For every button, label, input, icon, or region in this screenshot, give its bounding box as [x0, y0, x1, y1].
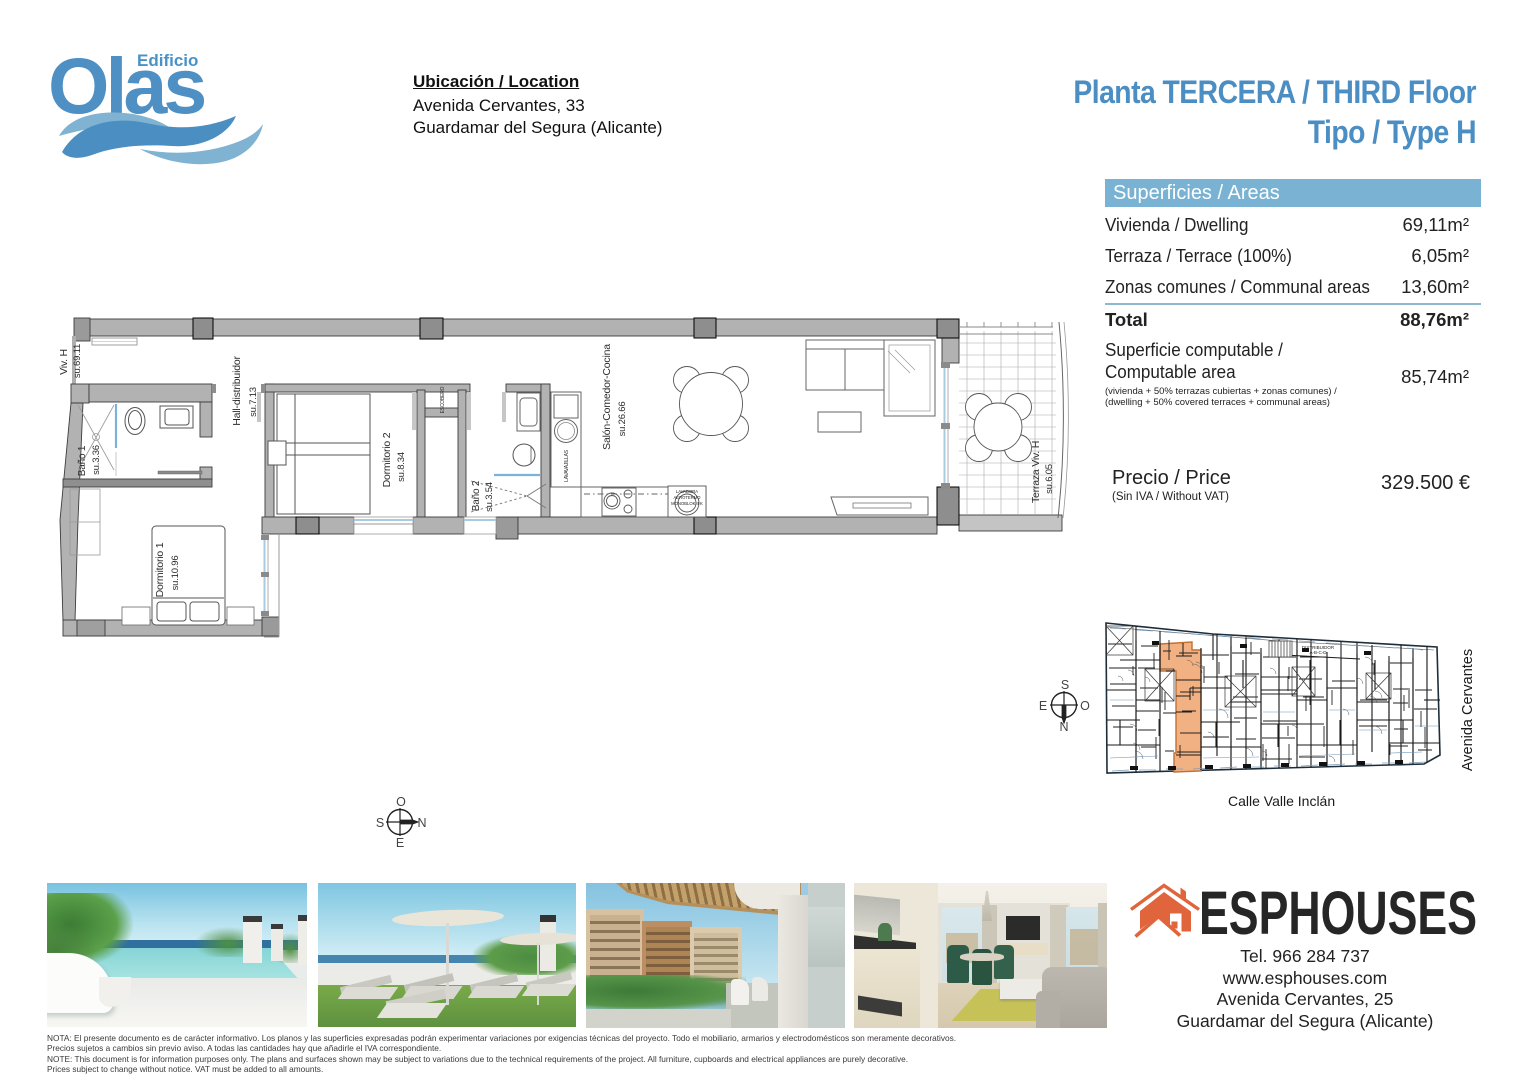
svg-text:Salón-Comedor-Cocina: Salón-Comedor-Cocina — [601, 344, 613, 450]
svg-text:A-B-C-D: A-B-C-D — [1310, 650, 1328, 655]
svg-text:Terraza Viv. H: Terraza Viv. H — [1030, 441, 1042, 503]
svg-text:N: N — [1059, 720, 1068, 734]
svg-text:su.8.34: su.8.34 — [396, 452, 407, 482]
svg-text:su.10.96: su.10.96 — [170, 556, 181, 591]
svg-text:ESPHOUSES: ESPHOUSES — [1199, 879, 1477, 947]
svg-text:su.7.13: su.7.13 — [248, 387, 259, 417]
svg-text:S: S — [1061, 678, 1069, 692]
svg-text:ESCOBERO: ESCOBERO — [440, 386, 446, 413]
svg-text:su.3.54: su.3.54 — [484, 482, 495, 512]
svg-text:su.69.11: su.69.11 — [72, 344, 83, 378]
svg-text:Baño 2: Baño 2 — [471, 480, 482, 511]
svg-text:AEROTERMO: AEROTERMO — [674, 495, 702, 500]
svg-text:MONOBLOK II K: MONOBLOK II K — [671, 501, 703, 506]
svg-text:O: O — [396, 795, 406, 809]
svg-text:Avenida Cervantes: Avenida Cervantes — [1460, 649, 1476, 771]
svg-text:Baño 1: Baño 1 — [77, 445, 88, 476]
svg-text:Calle Valle Inclán: Calle Valle Inclán — [1228, 793, 1335, 809]
svg-text:E: E — [1039, 699, 1047, 713]
svg-text:N: N — [417, 816, 426, 830]
svg-text:E: E — [396, 836, 404, 850]
svg-text:S: S — [376, 816, 384, 830]
svg-text:Viv. H: Viv. H — [58, 349, 70, 375]
svg-text:Hall-distribuidor: Hall-distribuidor — [231, 356, 243, 426]
svg-text:Dormitorio 1: Dormitorio 1 — [154, 542, 166, 597]
svg-text:Dormitorio 2: Dormitorio 2 — [381, 432, 393, 487]
svg-text:su.6.05: su.6.05 — [1044, 464, 1055, 494]
svg-text:LAVADORA: LAVADORA — [676, 489, 698, 494]
svg-text:O: O — [1080, 699, 1090, 713]
svg-text:LAVAVAJILLAS: LAVAVAJILLAS — [564, 449, 570, 482]
svg-text:Edificio: Edificio — [137, 51, 198, 70]
svg-text:su.3.36: su.3.36 — [91, 445, 102, 475]
svg-text:su.26.66: su.26.66 — [617, 402, 628, 437]
